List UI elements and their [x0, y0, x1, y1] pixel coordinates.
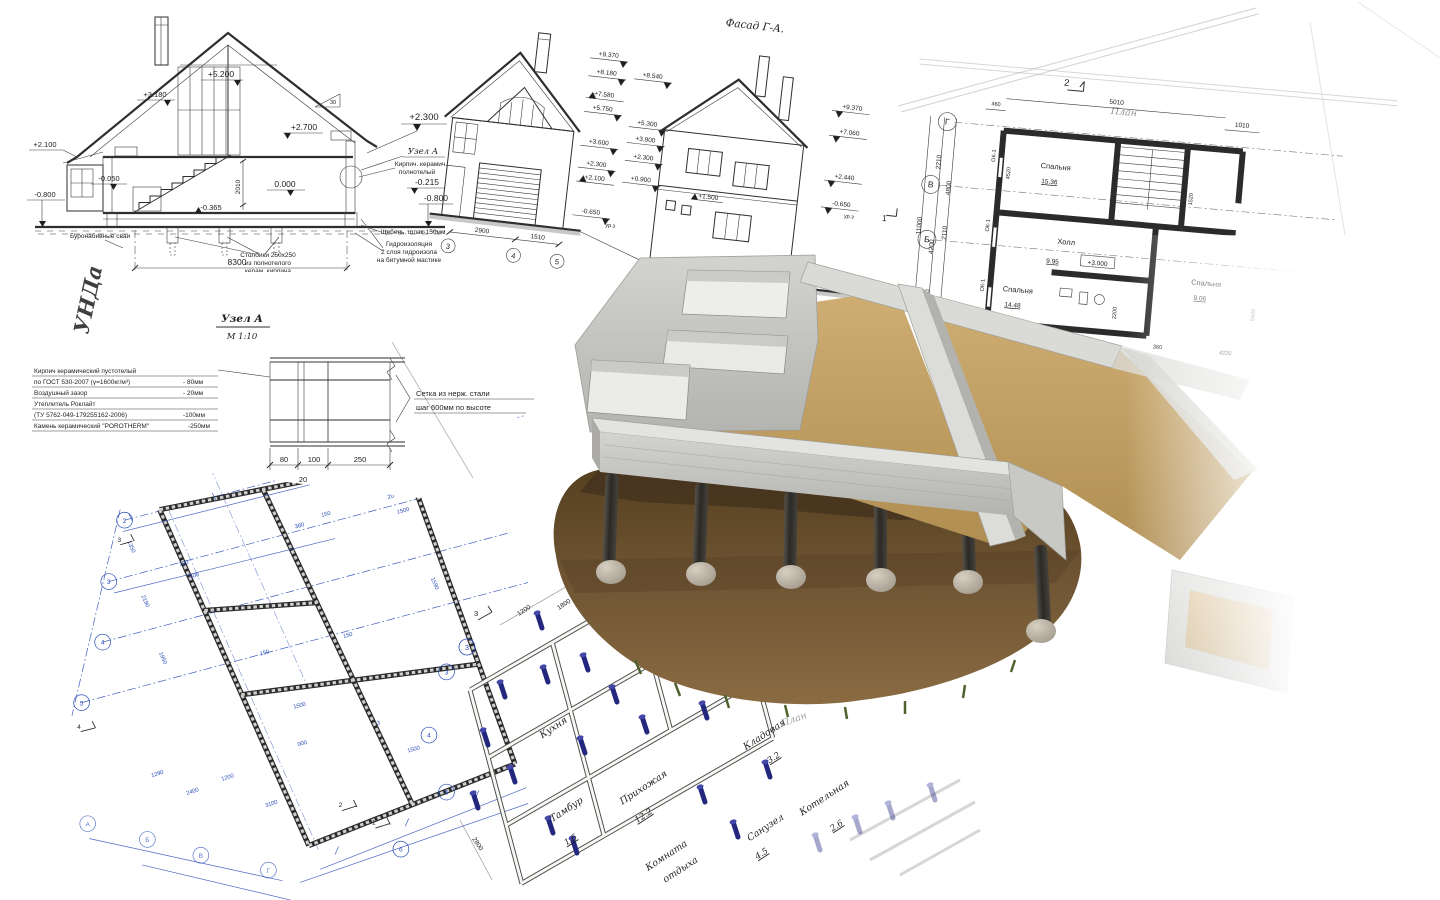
note-brick: полнотелый	[399, 168, 436, 176]
sketch-axis: 3 3	[459, 606, 492, 655]
section-house: 30	[35, 17, 445, 255]
dim-20: 20	[299, 475, 307, 484]
dim-2010: 2010	[235, 179, 242, 194]
elev-ceiling: +2.700	[291, 122, 318, 132]
dim: 1200	[221, 773, 235, 783]
elev-floor: -0.050	[98, 174, 119, 183]
uzel-detail-drawing: УНДа Узел А М 1:10 Кирпич керамический п…	[20, 280, 580, 510]
axis: 6	[399, 847, 403, 854]
legend-line: (ТУ 5762-049-179255162-2006)	[34, 412, 127, 419]
sketch-room-labels: Кухня Тамбур Прихожая Кладовая Санузел К…	[537, 710, 852, 885]
callout-mesh: Сетка из нерж. стали	[416, 389, 490, 398]
axis-3: 3	[465, 643, 469, 652]
legend-line: Утеплитель Роклайт	[34, 400, 96, 408]
cut: 3	[474, 609, 478, 618]
note-waterproof: Гидроизоляция	[386, 241, 432, 248]
architectural-collage: Фасад Г-А. 2900 1510 3 4 5 +9.370 +8.180…	[0, 0, 1440, 900]
dim: 3000	[297, 720, 381, 748]
legend-val: -100мм	[183, 412, 205, 419]
legend-val: - 80мм	[183, 379, 204, 386]
area: 4.5	[753, 846, 771, 862]
axis: В	[199, 853, 204, 860]
legend-line: Кирпич керамический пустотелый	[34, 367, 136, 375]
cut: 3	[118, 537, 122, 544]
elev-attic: +3.180	[143, 90, 166, 99]
elev-right-top: +2.300	[409, 112, 438, 123]
room-boiler: Котельная	[797, 778, 852, 819]
axis: А	[86, 821, 91, 828]
white-fade	[1125, 235, 1345, 715]
elev-peak: +5.200	[208, 69, 235, 79]
foundation-3d-render	[545, 235, 1345, 715]
note-uzel: Узел А	[408, 147, 438, 157]
dim: 1290	[151, 770, 165, 780]
slope-mark: 30	[330, 100, 336, 106]
dim-8300: 8300	[228, 257, 247, 267]
dim-100: 100	[308, 455, 321, 464]
cut: 1	[372, 820, 376, 827]
callout-mesh: шаг 600мм по высоте	[416, 403, 491, 412]
dim: 1950	[157, 651, 168, 665]
elev-right-mid: -0.215	[415, 177, 439, 187]
axis: Г	[267, 868, 271, 875]
elev-ground-left: -0.800	[34, 190, 55, 199]
note-waterproof: 2 слоя гидроизола	[381, 249, 437, 256]
note-posts: Столбики 250х250	[240, 251, 296, 259]
dim: 150	[343, 632, 354, 640]
elev-ground-right: -0.800	[424, 193, 448, 203]
dim: 2190	[139, 594, 150, 608]
dim: 150	[259, 649, 270, 657]
dim-80: 80	[280, 455, 288, 464]
dim: 1500	[293, 702, 307, 711]
room-wc: Санузел	[745, 812, 786, 844]
dim: 1500	[407, 745, 421, 754]
dim: 3100	[265, 800, 279, 810]
legend-val: -250мм	[188, 423, 210, 430]
section-drawing: 30 +5.200 +3.180 +2.700 2010	[15, 5, 455, 295]
axis: 4	[101, 640, 105, 647]
cut: 2	[339, 802, 343, 809]
note-brick: Кирпич. керамич.	[395, 161, 447, 168]
dim-250: 250	[354, 455, 367, 464]
uzel-scale: М 1:10	[226, 332, 258, 342]
elev-underfloor: -0.365	[200, 203, 221, 212]
cut: 4	[77, 724, 81, 731]
elev-eave: +2.100	[33, 140, 56, 149]
note-posts: из полнотелого	[245, 260, 291, 267]
axis: 2	[123, 518, 127, 525]
dim: 2400	[186, 787, 200, 797]
dim: 300	[189, 572, 200, 580]
legend-line: по ГОСТ 530-2007 (γ=1600кг/м³)	[34, 379, 130, 386]
elev-zero: 0.000	[274, 179, 296, 189]
note-waterproof: на битумной мастике	[377, 256, 442, 264]
uzel-title-text: Узел А	[221, 313, 263, 325]
legend-line: Воздушный зазор	[34, 389, 88, 397]
note-gravel: Щебень, шлак-150мм	[381, 228, 446, 236]
legend-line: Камень керамический "POROTHERM"	[34, 422, 150, 430]
axis: Б	[145, 837, 149, 844]
dim: 2800	[470, 836, 484, 852]
note-piles: Буронабивные сваи	[70, 232, 130, 240]
legend-val: - 20мм	[183, 390, 204, 397]
axis: 5	[80, 700, 84, 707]
dim: 150	[321, 511, 332, 519]
sketch-faint-walls	[850, 780, 980, 875]
axis: 3	[107, 579, 111, 586]
area: 2.6	[828, 818, 846, 835]
